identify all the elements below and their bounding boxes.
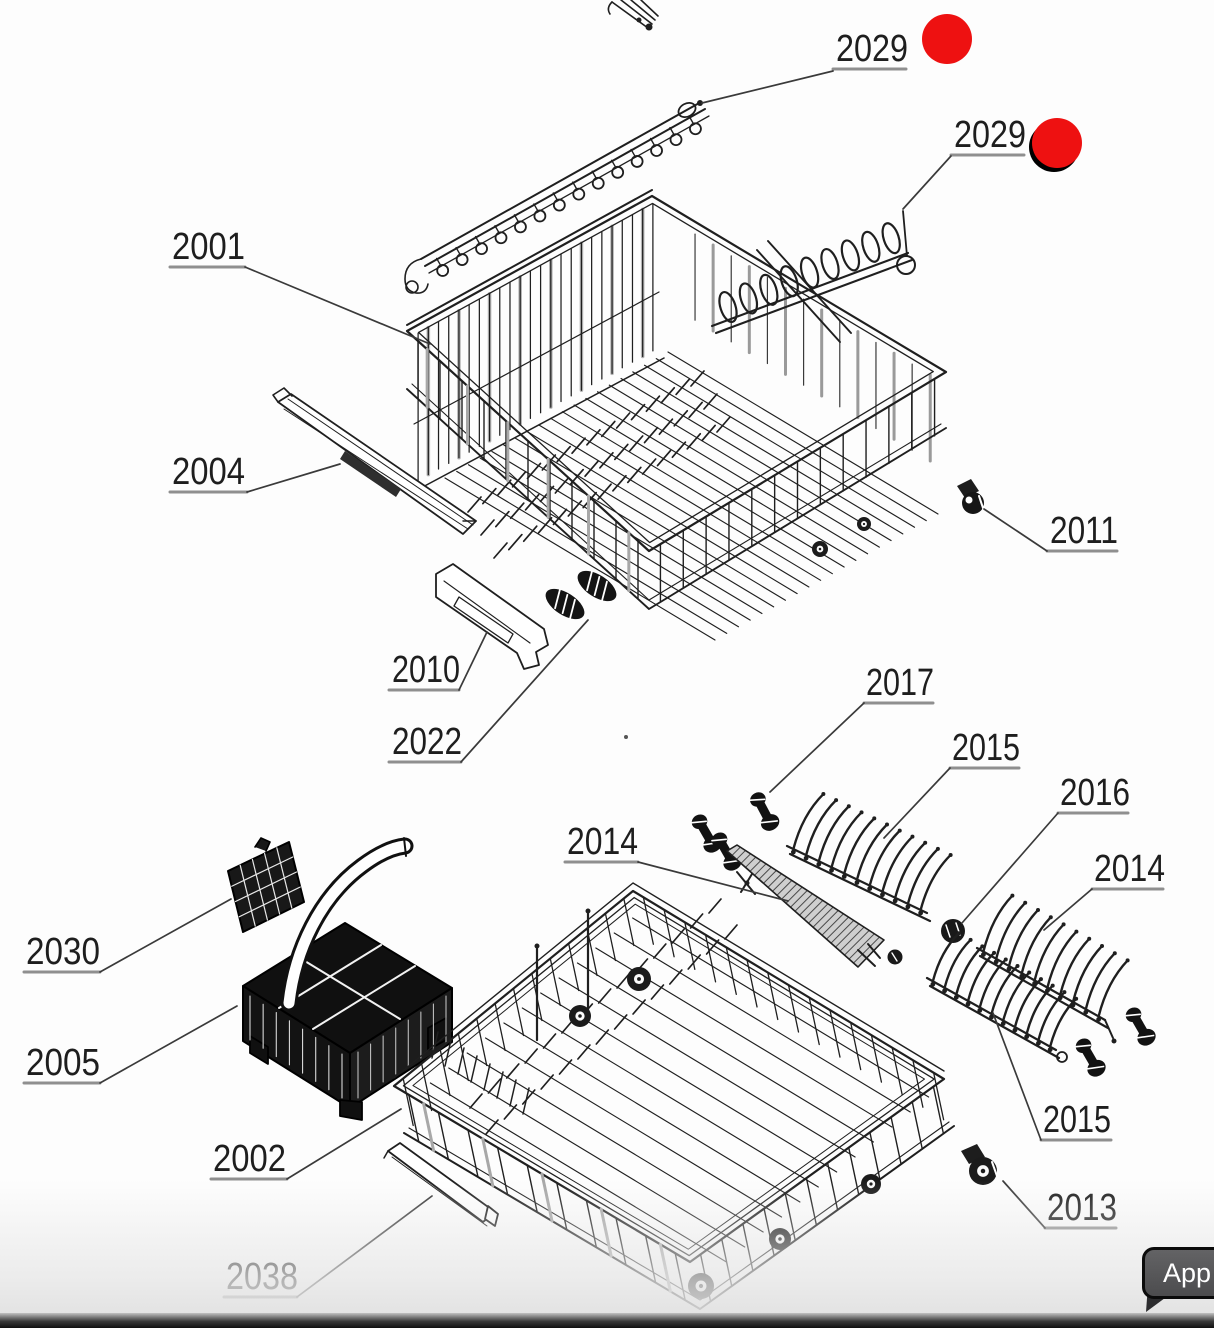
part-label-2029-top: 2029 — [836, 28, 908, 70]
part-label-2029-right: 2029 — [954, 114, 1026, 156]
part-label-2022: 2022 — [392, 721, 462, 763]
part-label-2030: 2030 — [26, 931, 100, 973]
part-label-2014-left: 2014 — [567, 821, 638, 863]
part-label-2038: 2038 — [226, 1256, 298, 1298]
parts-diagram-page: 2029202920012004201120102022201720152016… — [0, 0, 1214, 1328]
bottom-edge-bar — [0, 1313, 1214, 1328]
part-label-2001: 2001 — [172, 226, 245, 268]
part-label-2016: 2016 — [1060, 772, 1130, 814]
part-label-2010: 2010 — [392, 649, 460, 691]
part-label-2013: 2013 — [1047, 1187, 1117, 1229]
exploded-parts-diagram: 2029202920012004201120102022201720152016… — [0, 0, 1214, 1328]
part-label-2002: 2002 — [213, 1138, 286, 1180]
hotspot-2029-right[interactable] — [1032, 118, 1082, 168]
part-label-2015-upper: 2015 — [952, 727, 1020, 769]
hotspot-2029-top[interactable] — [922, 14, 972, 64]
part-label-2011: 2011 — [1050, 510, 1118, 552]
line-art-drawing — [228, 0, 1159, 1309]
part-label-2004: 2004 — [172, 451, 245, 493]
part-label-2015-lower: 2015 — [1043, 1099, 1111, 1141]
part-label-2014-right: 2014 — [1094, 848, 1165, 890]
app-button[interactable]: App — [1142, 1247, 1214, 1299]
part-label-2017: 2017 — [866, 662, 934, 704]
part-label-2005: 2005 — [26, 1042, 100, 1084]
app-button-label: App — [1163, 1258, 1211, 1289]
part-number-labels: 2029202920012004201120102022201720152016… — [26, 28, 1165, 1298]
